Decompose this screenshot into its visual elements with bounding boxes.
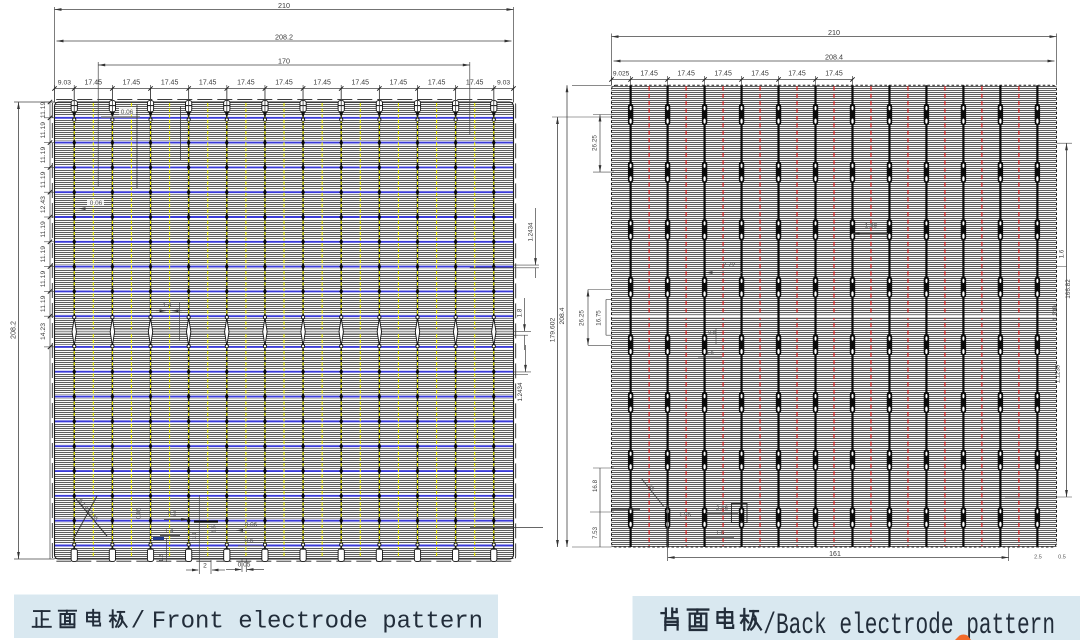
svg-text:17.45: 17.45 [313,79,331,86]
svg-text:Front electrode pattern: Front electrode pattern [152,609,483,636]
svg-text:1.1239: 1.1239 [1056,364,1062,383]
svg-text:166.82: 166.82 [1065,279,1072,299]
svg-text:17.45: 17.45 [428,79,446,86]
svg-text:17.45: 17.45 [161,79,179,86]
svg-text:16.75: 16.75 [595,310,602,326]
svg-text:210: 210 [828,28,840,37]
svg-text:7.53: 7.53 [592,526,599,539]
svg-text:17.45: 17.45 [85,79,103,86]
svg-text:17.45: 17.45 [275,79,293,86]
svg-text:26.25: 26.25 [578,310,585,326]
svg-text:0.06: 0.06 [90,200,103,207]
svg-text:12.43: 12.43 [40,196,47,213]
svg-text:1.6: 1.6 [716,530,725,537]
svg-text:17.45: 17.45 [825,70,843,77]
svg-text:17.45: 17.45 [199,79,217,86]
svg-text:1.4: 1.4 [163,302,172,309]
svg-text:11.19: 11.19 [40,122,47,139]
svg-text:2.86: 2.86 [716,505,729,512]
svg-text:1.2434: 1.2434 [517,382,524,401]
svg-text:170: 170 [278,56,290,65]
svg-text:17.45: 17.45 [751,70,769,77]
svg-text:0.06: 0.06 [245,522,258,529]
svg-text:208.4: 208.4 [825,52,843,61]
svg-text:17.45: 17.45 [677,70,695,77]
svg-text:161: 161 [829,551,841,558]
svg-text:17.45: 17.45 [237,79,255,86]
svg-text:/: / [131,609,145,636]
svg-text:9.03: 9.03 [497,79,510,86]
svg-text:2.5: 2.5 [1034,555,1042,561]
svg-text:210: 210 [278,1,290,10]
svg-text:11.19: 11.19 [40,171,47,188]
svg-text:0.2: 0.2 [168,511,177,518]
svg-text:179.602: 179.602 [550,318,557,343]
svg-text:17.45: 17.45 [390,79,408,86]
svg-text:1.88: 1.88 [865,223,878,230]
svg-text:17.45: 17.45 [352,79,370,86]
svg-text:14.23: 14.23 [40,323,47,340]
svg-text:208.2: 208.2 [275,32,293,41]
svg-text:1.1: 1.1 [192,532,198,540]
svg-text:17.45: 17.45 [714,70,732,77]
svg-text:1.2434: 1.2434 [527,222,534,241]
svg-text:16.8: 16.8 [592,479,599,492]
svg-text:17.45: 17.45 [788,70,806,77]
svg-text:17.45: 17.45 [123,79,141,86]
svg-text:0.6: 0.6 [245,538,254,545]
svg-text:1.3: 1.3 [159,554,165,562]
svg-text:1.239: 1.239 [1052,305,1059,321]
svg-text:0.5: 0.5 [1058,555,1066,561]
svg-text:0.05: 0.05 [238,562,251,569]
svg-text:/Back electrode pattern: /Back electrode pattern [763,608,1055,640]
svg-text:1.6: 1.6 [1058,249,1065,258]
svg-text:26.25: 26.25 [592,135,599,151]
svg-text:0.06: 0.06 [121,109,134,116]
svg-text:9.025: 9.025 [613,70,630,77]
svg-text:17.45: 17.45 [640,70,658,77]
svg-text:11.19: 11.19 [40,271,47,288]
svg-text:11.19: 11.19 [40,246,47,263]
svg-text:11.19: 11.19 [40,147,47,164]
svg-text:11.19: 11.19 [40,101,47,118]
svg-text:17.45: 17.45 [466,79,484,86]
svg-text:1.5: 1.5 [212,525,218,533]
svg-text:1.95: 1.95 [679,512,692,519]
svg-text:0.8: 0.8 [708,330,716,336]
svg-text:1.8: 1.8 [517,308,524,317]
svg-text:0.05: 0.05 [137,507,143,519]
svg-text:208.4: 208.4 [559,307,566,324]
svg-text:2.72: 2.72 [723,262,736,269]
svg-text:2: 2 [203,562,207,569]
svg-text:1.4: 1.4 [165,528,174,535]
svg-text:11.19: 11.19 [40,295,47,312]
svg-text:1.5: 1.5 [706,350,714,356]
svg-text:11.19: 11.19 [40,221,47,238]
svg-text:9.03: 9.03 [58,79,71,86]
svg-text:208.2: 208.2 [9,321,18,339]
